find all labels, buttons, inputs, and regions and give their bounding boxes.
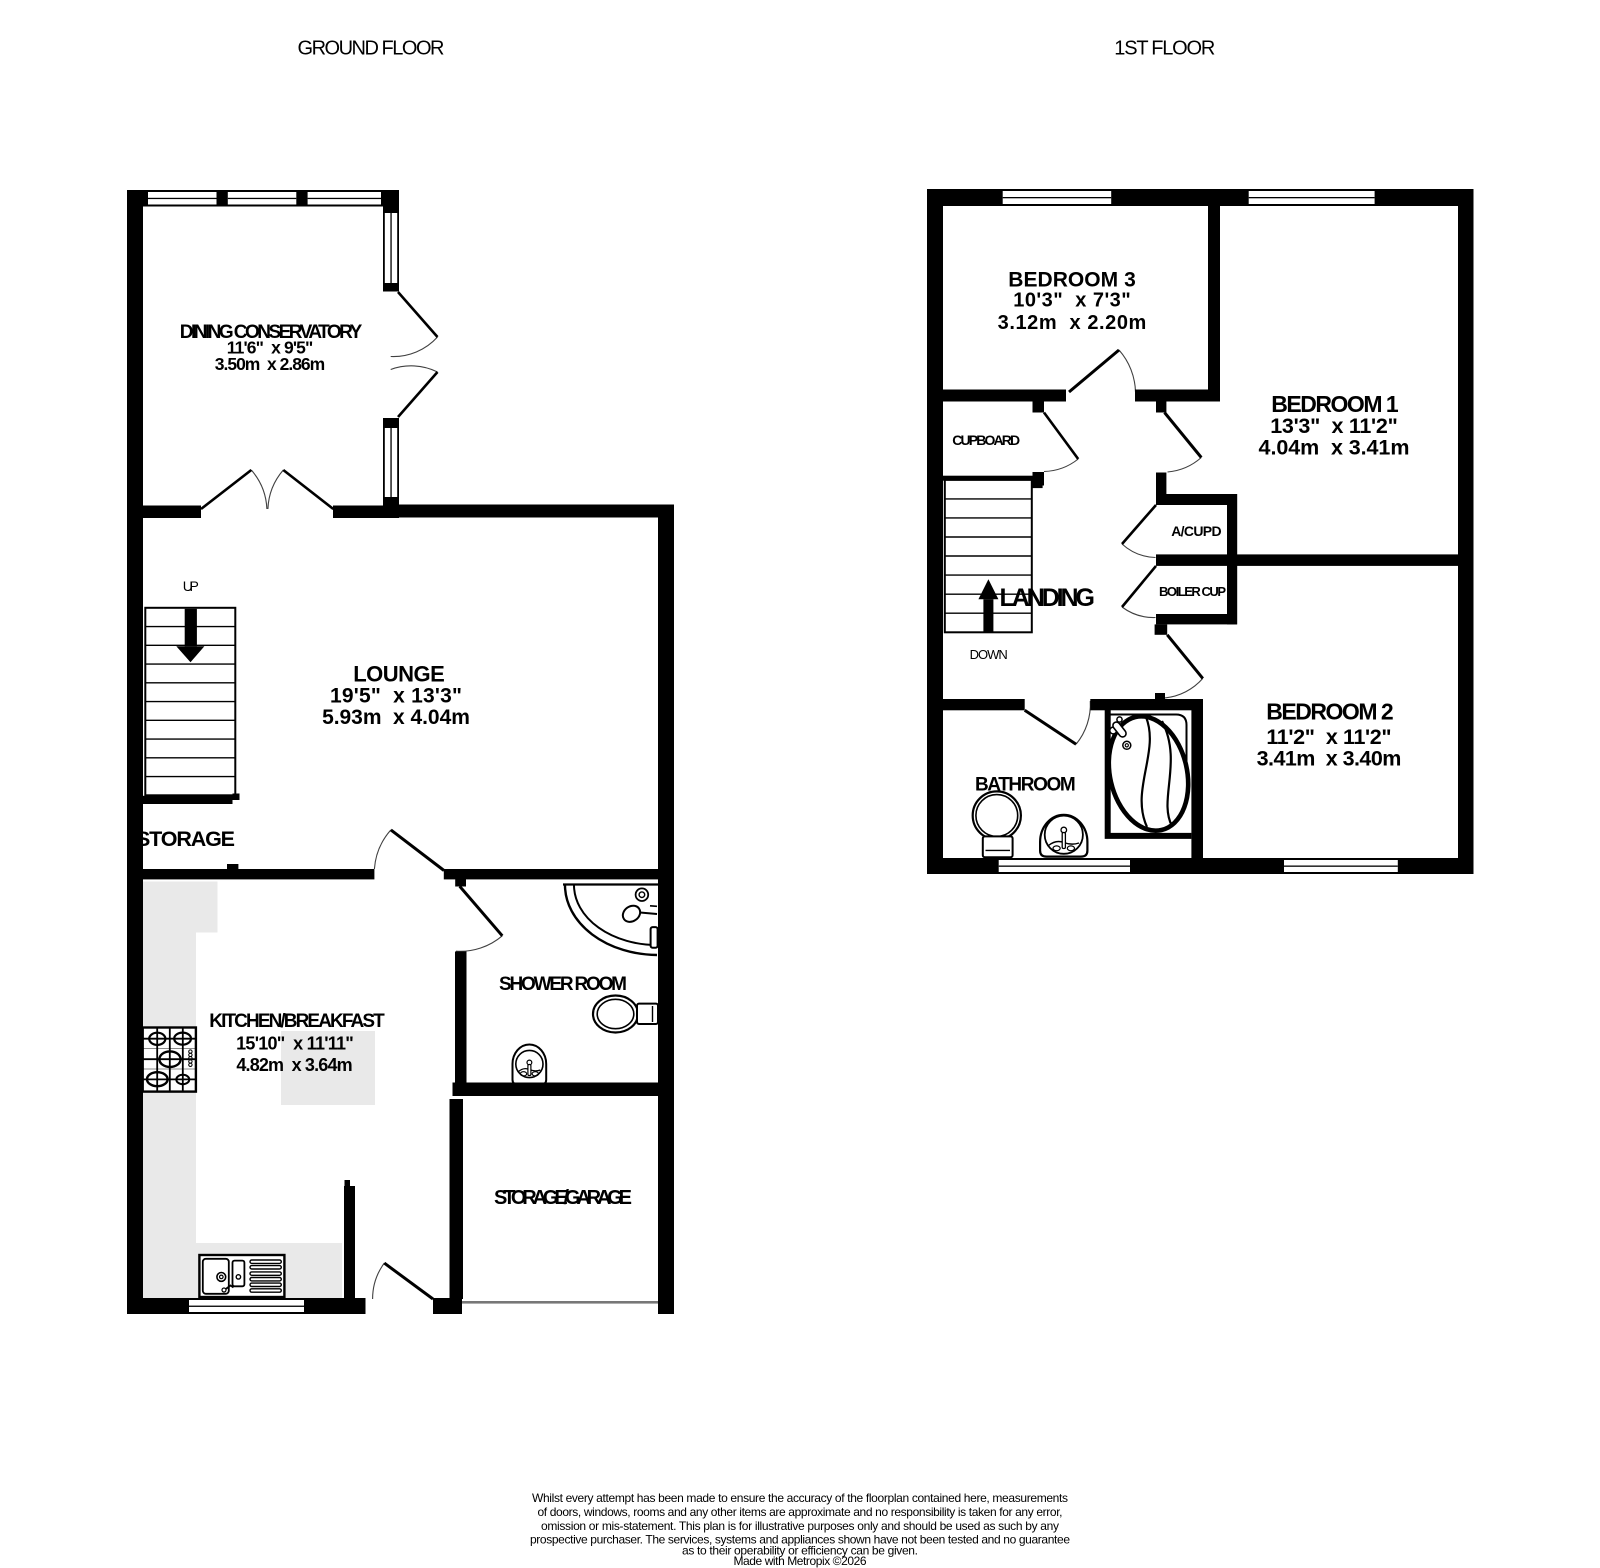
svg-text:Whilst every attempt has been: Whilst every attempt has been made to en… (532, 1491, 1068, 1505)
svg-text:15'10" x 11'11": 15'10" x 11'11" (236, 1033, 354, 1053)
svg-text:Made with Metropix ©2026: Made with Metropix ©2026 (734, 1554, 867, 1568)
svg-text:3.50m x 2.86m: 3.50m x 2.86m (215, 354, 325, 374)
svg-text:19'5" x 13'3": 19'5" x 13'3" (330, 685, 462, 708)
svg-text:4.82m x 3.64m: 4.82m x 3.64m (236, 1055, 352, 1075)
svg-text:UP: UP (183, 578, 199, 594)
svg-text:A/CUPD: A/CUPD (1171, 523, 1221, 539)
svg-text:STORAGE: STORAGE (136, 827, 235, 851)
svg-text:3.41m x 3.40m: 3.41m x 3.40m (1257, 747, 1402, 771)
svg-text:STORAGE/GARAGE: STORAGE/GARAGE (494, 1187, 632, 1209)
svg-text:DOWN: DOWN (970, 647, 1008, 662)
svg-text:11'2" x 11'2": 11'2" x 11'2" (1266, 725, 1391, 749)
svg-text:LANDING: LANDING (1000, 584, 1095, 612)
svg-text:BEDROOM 3: BEDROOM 3 (1008, 268, 1136, 291)
svg-text:BATHROOM: BATHROOM (975, 774, 1076, 795)
svg-text:BOILER CUP: BOILER CUP (1159, 584, 1226, 599)
svg-text:3.12m x 2.20m: 3.12m x 2.20m (998, 312, 1147, 334)
svg-text:10'3" x 7'3": 10'3" x 7'3" (1013, 289, 1131, 311)
svg-text:omission or mis-statement. Thi: omission or mis-statement. This plan is … (541, 1519, 1059, 1533)
svg-text:of doors, windows, rooms and a: of doors, windows, rooms and any other i… (538, 1505, 1063, 1519)
svg-text:GROUND FLOOR: GROUND FLOOR (298, 38, 445, 60)
svg-text:BEDROOM 1: BEDROOM 1 (1271, 391, 1399, 417)
svg-text:LOUNGE: LOUNGE (353, 661, 445, 686)
svg-text:1ST FLOOR: 1ST FLOOR (1114, 38, 1215, 60)
svg-text:CUPBOARD: CUPBOARD (952, 432, 1020, 448)
svg-text:5.93m x 4.04m: 5.93m x 4.04m (322, 706, 470, 729)
svg-text:BEDROOM 2: BEDROOM 2 (1266, 699, 1393, 725)
svg-text:KITCHEN/BREAKFAST: KITCHEN/BREAKFAST (209, 1011, 385, 1032)
svg-text:SHOWER ROOM: SHOWER ROOM (499, 974, 627, 995)
svg-text:4.04m x 3.41m: 4.04m x 3.41m (1259, 435, 1410, 459)
